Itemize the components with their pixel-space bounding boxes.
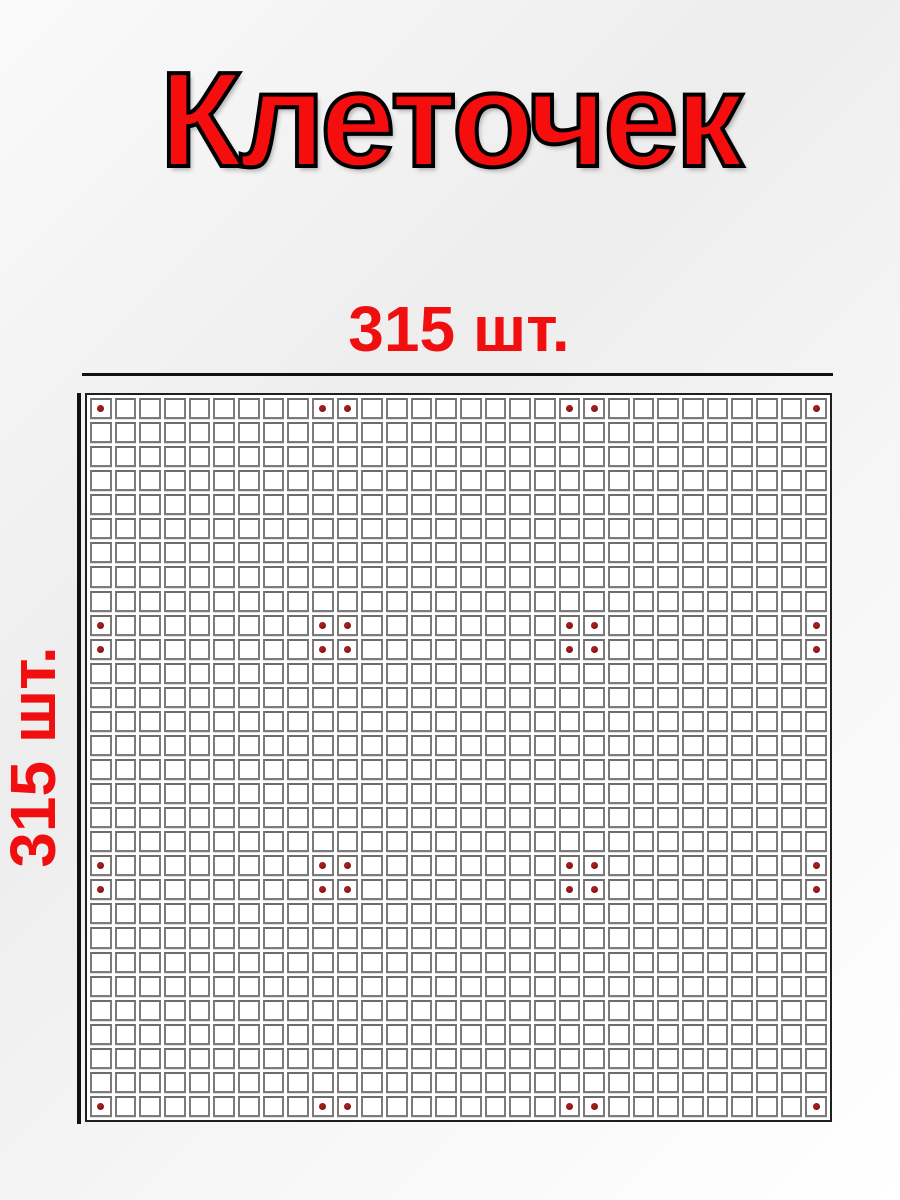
grid-cell <box>805 542 827 563</box>
grid-cell <box>707 615 729 636</box>
grid-cell <box>633 518 655 539</box>
grid-cell <box>731 711 753 732</box>
marker-dot <box>97 646 104 653</box>
grid-cell <box>805 1096 827 1117</box>
grid-cell <box>238 735 260 756</box>
grid-cell <box>805 398 827 419</box>
grid-cell <box>287 687 309 708</box>
grid-cell <box>534 783 556 804</box>
grid-cell <box>485 566 507 587</box>
grid-cell <box>139 591 161 612</box>
grid-cell <box>435 1072 457 1093</box>
grid-cell <box>213 976 235 997</box>
grid-cell <box>90 494 112 515</box>
grid-cell <box>90 1000 112 1021</box>
marker-dot <box>591 862 598 869</box>
grid-cell <box>213 807 235 828</box>
grid-cell <box>707 976 729 997</box>
grid-cell <box>559 903 581 924</box>
grid-cell <box>583 470 605 491</box>
grid-cell <box>115 542 137 563</box>
grid-cell <box>657 976 679 997</box>
grid-cell <box>509 1024 531 1045</box>
grid-cell <box>608 663 630 684</box>
grid-cell <box>805 494 827 515</box>
grid-cell <box>485 1024 507 1045</box>
grid-cell <box>460 927 482 948</box>
grid-cell <box>435 711 457 732</box>
grid-cell <box>312 1000 334 1021</box>
grid-cell <box>633 976 655 997</box>
grid-cell <box>781 566 803 587</box>
grid-cell <box>337 446 359 467</box>
grid-cell <box>411 687 433 708</box>
grid-cell <box>90 518 112 539</box>
grid-cell <box>682 422 704 443</box>
grid-cell <box>485 591 507 612</box>
grid-cell <box>682 976 704 997</box>
grid-cell <box>534 446 556 467</box>
grid-cell <box>90 976 112 997</box>
grid-cell <box>682 1072 704 1093</box>
marker-dot <box>566 1103 573 1110</box>
grid-cell <box>781 735 803 756</box>
grid-cell <box>756 879 778 900</box>
grid-cell <box>633 1096 655 1117</box>
grid-cell <box>189 879 211 900</box>
grid-cell <box>707 831 729 852</box>
grid-cell <box>682 542 704 563</box>
marker-dot <box>344 405 351 412</box>
grid-cell <box>386 687 408 708</box>
grid-cell <box>411 494 433 515</box>
grid-cell <box>411 783 433 804</box>
grid-cell <box>213 591 235 612</box>
grid-cell <box>559 1000 581 1021</box>
grid-cell <box>534 1072 556 1093</box>
grid-cell <box>707 1048 729 1069</box>
grid-cell <box>90 1048 112 1069</box>
grid-cell <box>608 591 630 612</box>
grid-cell <box>731 952 753 973</box>
grid-cell <box>756 1048 778 1069</box>
grid-cell <box>805 518 827 539</box>
grid-cell <box>633 687 655 708</box>
grid-cell <box>90 807 112 828</box>
grid-cell <box>781 855 803 876</box>
grid-cell <box>485 470 507 491</box>
grid-cell <box>115 783 137 804</box>
grid-cell <box>312 518 334 539</box>
grid-cell <box>731 1048 753 1069</box>
grid-cell <box>707 566 729 587</box>
grid-cell <box>805 735 827 756</box>
grid-cell <box>386 663 408 684</box>
grid-cell <box>263 518 285 539</box>
grid-cell <box>731 422 753 443</box>
grid-cell <box>682 591 704 612</box>
grid-cell <box>435 591 457 612</box>
grid-cell <box>731 927 753 948</box>
grid-cell <box>460 807 482 828</box>
marker-dot <box>591 622 598 629</box>
grid-cell <box>633 927 655 948</box>
grid-cell <box>756 518 778 539</box>
grid-cell <box>115 566 137 587</box>
grid-cell <box>559 807 581 828</box>
grid-cell <box>781 879 803 900</box>
grid-cell <box>781 1048 803 1069</box>
grid-cell <box>460 470 482 491</box>
grid-cell <box>534 952 556 973</box>
grid-cell <box>608 446 630 467</box>
grid-cell <box>435 615 457 636</box>
grid-cell <box>115 952 137 973</box>
grid-cell <box>386 735 408 756</box>
grid-cell <box>386 1048 408 1069</box>
grid-cell <box>312 470 334 491</box>
grid-cell <box>164 927 186 948</box>
grid-cell <box>189 735 211 756</box>
grid-cell <box>534 831 556 852</box>
grid-cell <box>287 903 309 924</box>
grid-cell <box>287 735 309 756</box>
marker-dot <box>319 646 326 653</box>
grid-cell <box>139 711 161 732</box>
grid-cell <box>115 927 137 948</box>
grid-cell <box>633 759 655 780</box>
grid-cell <box>460 1072 482 1093</box>
grid-cell <box>559 1024 581 1045</box>
grid-cell <box>756 615 778 636</box>
grid-cell <box>287 711 309 732</box>
grid-cell <box>707 1096 729 1117</box>
grid-cell <box>731 518 753 539</box>
grid-cell <box>337 976 359 997</box>
grid-cell <box>781 1072 803 1093</box>
grid-cell <box>608 422 630 443</box>
grid-cell <box>485 903 507 924</box>
grid-cell <box>781 494 803 515</box>
grid-cell <box>509 1072 531 1093</box>
grid-cell <box>509 615 531 636</box>
grid-cell <box>559 855 581 876</box>
grid-cell <box>707 542 729 563</box>
grid-cell <box>559 831 581 852</box>
grid-cell <box>485 831 507 852</box>
grid-cell <box>386 783 408 804</box>
grid-cell <box>90 639 112 660</box>
grid-cell <box>361 542 383 563</box>
grid-cell <box>435 566 457 587</box>
grid-cell <box>633 879 655 900</box>
grid-cell <box>608 1024 630 1045</box>
marker-dot <box>319 1103 326 1110</box>
grid-cell <box>460 422 482 443</box>
grid-cell <box>534 470 556 491</box>
grid-cell <box>781 446 803 467</box>
grid-cell <box>189 807 211 828</box>
grid-cell <box>509 807 531 828</box>
grid-cell <box>90 566 112 587</box>
grid-cell <box>435 1000 457 1021</box>
grid-cell <box>633 446 655 467</box>
grid-cell <box>633 663 655 684</box>
grid-cell <box>781 1024 803 1045</box>
grid-cell <box>731 855 753 876</box>
grid-cell <box>263 1048 285 1069</box>
grid-cell <box>337 687 359 708</box>
grid-cell <box>707 663 729 684</box>
grid-cell <box>435 422 457 443</box>
grid-cell <box>312 1072 334 1093</box>
grid-cell <box>682 1048 704 1069</box>
grid-cell <box>312 615 334 636</box>
grid-cell <box>90 615 112 636</box>
grid-cell <box>361 422 383 443</box>
grid-cell <box>534 855 556 876</box>
grid-cell <box>386 927 408 948</box>
grid-cell <box>756 446 778 467</box>
grid-cell <box>386 518 408 539</box>
grid-cell <box>213 711 235 732</box>
grid-cell <box>312 398 334 419</box>
grid-cell <box>189 398 211 419</box>
grid-cell <box>411 663 433 684</box>
grid-cell <box>534 711 556 732</box>
grid-cell <box>164 976 186 997</box>
grid-cell <box>164 759 186 780</box>
grid-cell <box>633 639 655 660</box>
grid-cell <box>559 711 581 732</box>
grid-cell <box>485 759 507 780</box>
grid-cell <box>781 470 803 491</box>
grid-cell <box>115 422 137 443</box>
grid-cell <box>263 952 285 973</box>
grid-cell <box>633 855 655 876</box>
grid-cell <box>707 927 729 948</box>
grid-cell <box>164 470 186 491</box>
grid-cell <box>756 831 778 852</box>
grid-cell <box>485 446 507 467</box>
grid-cell <box>583 711 605 732</box>
grid-cell <box>657 615 679 636</box>
grid-cell <box>287 494 309 515</box>
grid-cell <box>238 927 260 948</box>
grid-cell <box>731 879 753 900</box>
grid-cell <box>756 711 778 732</box>
grid-cell <box>756 976 778 997</box>
grid-cell <box>608 687 630 708</box>
grid-cell <box>608 1096 630 1117</box>
grid-cell <box>287 398 309 419</box>
grid-cell <box>559 1096 581 1117</box>
grid-cell <box>608 1048 630 1069</box>
grid-cell <box>756 566 778 587</box>
grid-cell <box>781 711 803 732</box>
grid-cell <box>731 591 753 612</box>
grid-cell <box>189 1072 211 1093</box>
grid-cell <box>657 1096 679 1117</box>
grid-cell <box>509 976 531 997</box>
grid-cell <box>386 879 408 900</box>
grid-cell <box>781 663 803 684</box>
grid-cell <box>287 470 309 491</box>
grid-cell <box>485 1048 507 1069</box>
grid-cell <box>731 446 753 467</box>
grid-cell <box>386 398 408 419</box>
grid-cell <box>460 879 482 900</box>
grid-cell <box>805 903 827 924</box>
grid-cell <box>435 470 457 491</box>
grid-cell <box>559 398 581 419</box>
grid-cell <box>213 518 235 539</box>
grid-cell <box>312 639 334 660</box>
grid-cell <box>164 591 186 612</box>
grid-cell <box>139 903 161 924</box>
grid-cell <box>485 398 507 419</box>
grid-cell <box>337 1024 359 1045</box>
grid-cell <box>263 927 285 948</box>
grid-cell <box>287 855 309 876</box>
grid-cell <box>337 879 359 900</box>
grid-cell <box>361 903 383 924</box>
grid-cell <box>337 1048 359 1069</box>
grid-cell <box>312 903 334 924</box>
grid-cell <box>559 1048 581 1069</box>
grid-cell <box>460 446 482 467</box>
grid-cell <box>583 591 605 612</box>
grid-cell <box>337 903 359 924</box>
grid-cell <box>411 542 433 563</box>
grid-cell <box>509 518 531 539</box>
grid-cell <box>287 446 309 467</box>
grid-cell <box>287 879 309 900</box>
grid-cell <box>90 831 112 852</box>
grid-cell <box>707 494 729 515</box>
grid-cell <box>657 542 679 563</box>
grid-cell <box>213 927 235 948</box>
grid-cell <box>361 927 383 948</box>
grid-cell <box>682 927 704 948</box>
grid-cell <box>361 855 383 876</box>
grid-cell <box>633 615 655 636</box>
grid-cell <box>312 494 334 515</box>
grid-cell <box>583 1096 605 1117</box>
grid-cell <box>707 759 729 780</box>
grid-cell <box>139 615 161 636</box>
grid-cell <box>139 1048 161 1069</box>
grid-cell <box>312 807 334 828</box>
grid-cell <box>213 663 235 684</box>
grid-cell <box>238 1000 260 1021</box>
grid-cell <box>164 615 186 636</box>
grid-cell <box>287 1024 309 1045</box>
grid-cell <box>682 663 704 684</box>
grid-cell <box>460 903 482 924</box>
grid-cell <box>386 831 408 852</box>
grid-cell <box>633 398 655 419</box>
grid-cell <box>756 1072 778 1093</box>
grid-cell <box>657 518 679 539</box>
grid-cell <box>189 783 211 804</box>
grid-cell <box>608 1000 630 1021</box>
grid-cell <box>805 591 827 612</box>
grid-cell <box>337 422 359 443</box>
grid-cell <box>189 663 211 684</box>
grid-cell <box>509 855 531 876</box>
grid-cell <box>485 687 507 708</box>
grid-cell <box>139 518 161 539</box>
grid-cell <box>633 470 655 491</box>
grid-cell <box>657 591 679 612</box>
grid-cell <box>534 422 556 443</box>
grid-cell <box>90 855 112 876</box>
marker-dot <box>813 1103 820 1110</box>
grid-cell <box>337 518 359 539</box>
grid-cell <box>460 735 482 756</box>
grid-cell <box>731 1096 753 1117</box>
marker-dot <box>319 405 326 412</box>
grid-cell <box>337 1000 359 1021</box>
grid-cell <box>213 735 235 756</box>
grid-cell <box>756 398 778 419</box>
grid-cell <box>139 879 161 900</box>
grid-cell <box>337 398 359 419</box>
grid-cell <box>509 759 531 780</box>
grid-cell <box>485 1000 507 1021</box>
grid-cell <box>657 566 679 587</box>
grid-cell <box>435 783 457 804</box>
grid-cell <box>583 831 605 852</box>
grid-cell <box>90 422 112 443</box>
grid-cell <box>485 855 507 876</box>
grid-cell <box>139 783 161 804</box>
grid-cell <box>534 566 556 587</box>
grid-cell <box>312 1096 334 1117</box>
grid-cell <box>485 735 507 756</box>
grid-cell <box>263 1096 285 1117</box>
grid-cell <box>509 735 531 756</box>
marker-dot <box>344 886 351 893</box>
grid-cell <box>287 759 309 780</box>
grid-cell <box>164 879 186 900</box>
grid-cell <box>559 927 581 948</box>
marker-dot <box>319 862 326 869</box>
grid-cell <box>583 879 605 900</box>
grid-cell <box>164 446 186 467</box>
grid-cell <box>411 831 433 852</box>
grid-cell <box>534 1024 556 1045</box>
grid-cell <box>682 735 704 756</box>
grid-cell <box>633 1048 655 1069</box>
grid-cell <box>337 711 359 732</box>
grid-cell <box>411 639 433 660</box>
grid-cell <box>287 566 309 587</box>
grid-cell <box>238 591 260 612</box>
grid-cell <box>287 976 309 997</box>
grid-cell <box>460 855 482 876</box>
grid-cell <box>460 398 482 419</box>
grid-cell <box>139 446 161 467</box>
grid-cell <box>386 591 408 612</box>
grid-cell <box>263 1000 285 1021</box>
grid-cell <box>608 470 630 491</box>
grid-cell <box>411 1048 433 1069</box>
grid-cell <box>238 711 260 732</box>
grid-cell <box>238 470 260 491</box>
grid-cell <box>583 807 605 828</box>
